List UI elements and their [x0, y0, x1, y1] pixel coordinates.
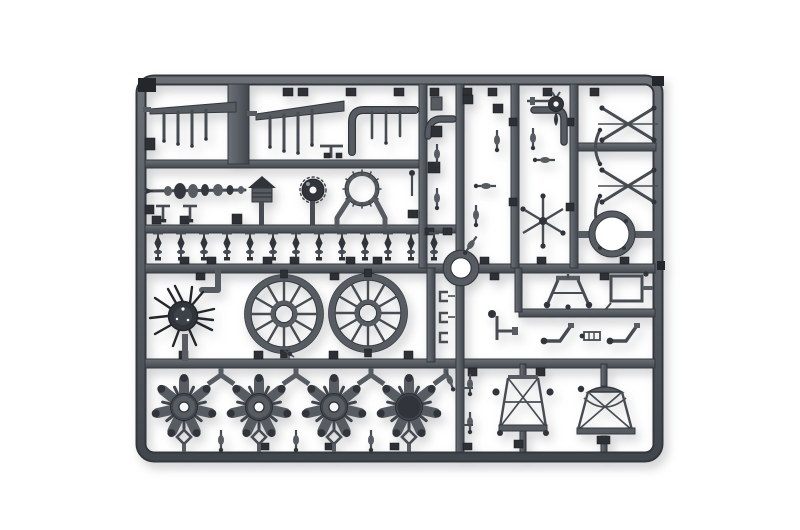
- toothed-disc: [300, 177, 326, 225]
- rect-frame-part: [605, 271, 653, 310]
- radial-engine-2: [227, 374, 292, 437]
- spoked-wheel-right: [329, 269, 407, 357]
- engine-row-gates: [177, 430, 416, 452]
- radial-engine-1: [152, 374, 217, 437]
- x-brace-strut-bottom: [598, 167, 658, 204]
- engine-mount-frame-2: [577, 386, 635, 434]
- bent-lever-left: [541, 323, 574, 344]
- bent-lever-right: [607, 323, 640, 344]
- cowl-ring-large: [578, 211, 655, 257]
- exhaust-elbow-pipe-3: [534, 110, 564, 142]
- ladder-bit: [580, 332, 600, 340]
- clamp-bits: [440, 292, 455, 342]
- spiked-hub: [150, 270, 218, 361]
- small-t-bracket: [320, 146, 343, 158]
- ribbed-mushroom-cap: [248, 176, 276, 225]
- sprue-canvas: [0, 0, 800, 530]
- top-column-blocks: [431, 97, 442, 166]
- six-arm-star: [520, 193, 565, 248]
- spoked-wheel-left: [245, 270, 323, 358]
- exhaust-elbow-pipe-1: [352, 110, 415, 152]
- wing-spar-comb-left: [143, 102, 236, 148]
- engine-mount-frame-1: [492, 377, 553, 436]
- ticked-cowl-ring: [337, 170, 385, 226]
- x-brace-strut-top: [598, 105, 658, 142]
- sprue: [138, 76, 665, 457]
- ball-pin: [409, 170, 415, 196]
- elbow-lever: [488, 310, 518, 340]
- sprue-photo: [0, 0, 800, 530]
- finial-pin-row: [153, 232, 439, 261]
- a-frame-part: [544, 274, 592, 310]
- cowl-ring-small: [443, 250, 479, 286]
- crankshaft: [146, 183, 245, 199]
- radial-engine-3: [302, 374, 367, 437]
- radial-engine-4: [377, 374, 442, 437]
